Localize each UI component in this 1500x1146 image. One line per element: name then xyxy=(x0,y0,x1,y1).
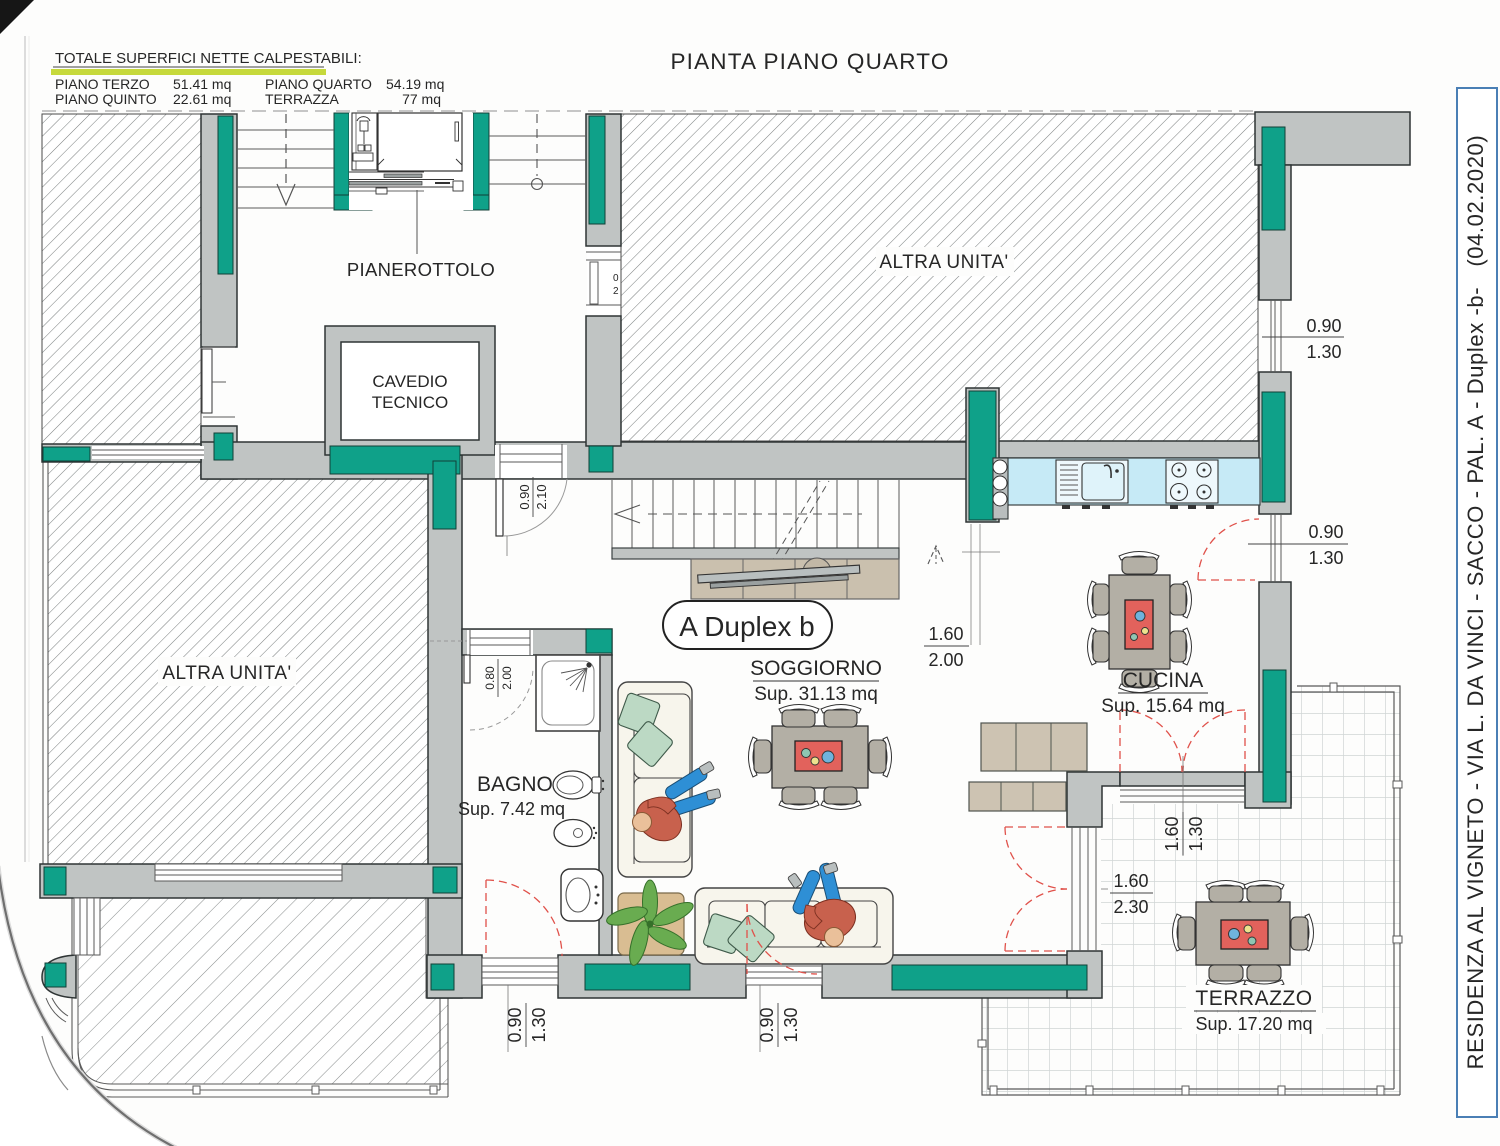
svg-text:1.30: 1.30 xyxy=(529,1007,549,1042)
svg-text:PIANEROTTOLO: PIANEROTTOLO xyxy=(347,259,495,280)
svg-text:TOTALE SUPERFICI NETTE CALPEST: TOTALE SUPERFICI NETTE CALPESTABILI: xyxy=(55,50,362,67)
svg-text:2.00: 2.00 xyxy=(928,650,963,670)
svg-text:CUCINA: CUCINA xyxy=(1123,669,1204,692)
svg-text:Sup. 17.20 mq: Sup. 17.20 mq xyxy=(1195,1014,1312,1034)
svg-text:PIANO QUINTO: PIANO QUINTO xyxy=(55,91,157,107)
svg-text:22.61 mq: 22.61 mq xyxy=(173,91,231,107)
svg-text:0.90: 0.90 xyxy=(505,1007,525,1042)
svg-text:ALTRA UNITA': ALTRA UNITA' xyxy=(162,663,291,684)
svg-text:A Duplex b: A Duplex b xyxy=(679,611,814,642)
svg-text:1.30: 1.30 xyxy=(1306,342,1341,362)
svg-text:Sup. 31.13 mq: Sup. 31.13 mq xyxy=(754,684,878,705)
svg-text:54.19 mq: 54.19 mq xyxy=(386,76,444,92)
svg-text:ALTRA UNITA': ALTRA UNITA' xyxy=(879,252,1008,273)
svg-text:2: 2 xyxy=(613,286,619,297)
svg-text:1.30: 1.30 xyxy=(1186,816,1206,851)
svg-text:1.60: 1.60 xyxy=(1113,871,1148,891)
svg-text:TECNICO: TECNICO xyxy=(372,393,449,412)
svg-text:0: 0 xyxy=(613,273,619,284)
svg-text:1.60: 1.60 xyxy=(1162,816,1182,851)
svg-text:TERRAZZA: TERRAZZA xyxy=(265,91,340,107)
svg-text:0.90: 0.90 xyxy=(517,484,532,509)
svg-text:0.80: 0.80 xyxy=(483,666,497,690)
svg-text:2.10: 2.10 xyxy=(534,484,549,509)
svg-text:1.30: 1.30 xyxy=(781,1007,801,1042)
svg-text:0.90: 0.90 xyxy=(757,1007,777,1042)
svg-text:TERRAZZO: TERRAZZO xyxy=(1195,987,1312,1010)
svg-text:2.00: 2.00 xyxy=(500,666,514,690)
svg-text:PIANO QUARTO: PIANO QUARTO xyxy=(265,76,372,92)
svg-text:Sup. 15.64 mq: Sup. 15.64 mq xyxy=(1101,696,1225,717)
svg-text:2.30: 2.30 xyxy=(1113,897,1148,917)
svg-text:RESIDENZA AL VIGNETO - VIA L.: RESIDENZA AL VIGNETO - VIA L. DA VINCI -… xyxy=(1463,135,1488,1070)
svg-text:1.30: 1.30 xyxy=(1308,548,1343,568)
svg-text:CAVEDIO: CAVEDIO xyxy=(372,372,447,391)
svg-text:51.41 mq: 51.41 mq xyxy=(173,76,231,92)
svg-text:0.90: 0.90 xyxy=(1308,522,1343,542)
svg-text:Sup. 7.42 mq: Sup. 7.42 mq xyxy=(458,799,565,819)
svg-text:77 mq: 77 mq xyxy=(402,91,441,107)
svg-text:BAGNO: BAGNO xyxy=(477,773,553,796)
svg-text:1.60: 1.60 xyxy=(928,624,963,644)
svg-text:PIANO TERZO: PIANO TERZO xyxy=(55,76,150,92)
svg-text:SOGGIORNO: SOGGIORNO xyxy=(750,657,882,680)
svg-text:PIANTA PIANO QUARTO: PIANTA PIANO QUARTO xyxy=(670,49,949,74)
svg-text:0.90: 0.90 xyxy=(1306,316,1341,336)
